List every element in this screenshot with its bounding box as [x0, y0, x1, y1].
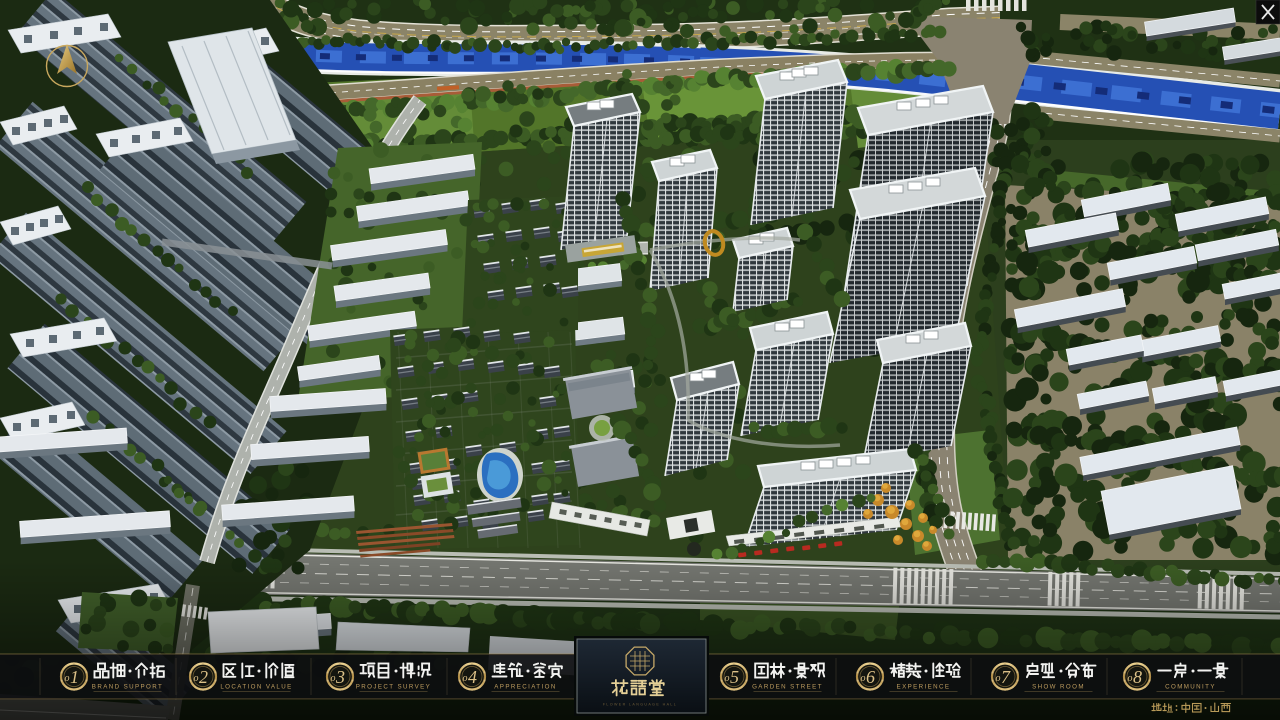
svg-text:APPRECIATION: APPRECIATION	[494, 684, 556, 691]
svg-text:o: o	[725, 673, 730, 684]
svg-text:GARDEN STREET: GARDEN STREET	[752, 684, 823, 691]
svg-text:o: o	[194, 673, 199, 684]
svg-text:o: o	[65, 673, 70, 684]
svg-text:o: o	[331, 673, 336, 684]
svg-text:2: 2	[199, 667, 208, 687]
svg-text:o: o	[861, 673, 866, 684]
svg-text:PROJECT SURVEY: PROJECT SURVEY	[356, 684, 431, 691]
svg-text:o: o	[996, 673, 1001, 684]
svg-text:LOCATION VALUE: LOCATION VALUE	[220, 684, 292, 691]
svg-text:o: o	[1128, 673, 1133, 684]
svg-text:4: 4	[468, 667, 477, 687]
svg-text:8: 8	[1133, 667, 1142, 687]
svg-text:EXPERIENCE: EXPERIENCE	[897, 684, 951, 691]
svg-text:BRAND SUPPORT: BRAND SUPPORT	[92, 684, 163, 691]
svg-text:6: 6	[866, 667, 875, 687]
svg-text:3: 3	[335, 667, 345, 687]
svg-text:SHOW ROOM: SHOW ROOM	[1032, 684, 1085, 691]
svg-text:COMMUNITY: COMMUNITY	[1165, 684, 1216, 691]
svg-text:5: 5	[730, 667, 739, 687]
svg-text:o: o	[463, 673, 468, 684]
svg-text:7: 7	[1001, 667, 1011, 687]
svg-text:1: 1	[70, 667, 79, 687]
svg-text:FLOWER LANGUAGE HALL: FLOWER LANGUAGE HALL	[603, 703, 677, 707]
